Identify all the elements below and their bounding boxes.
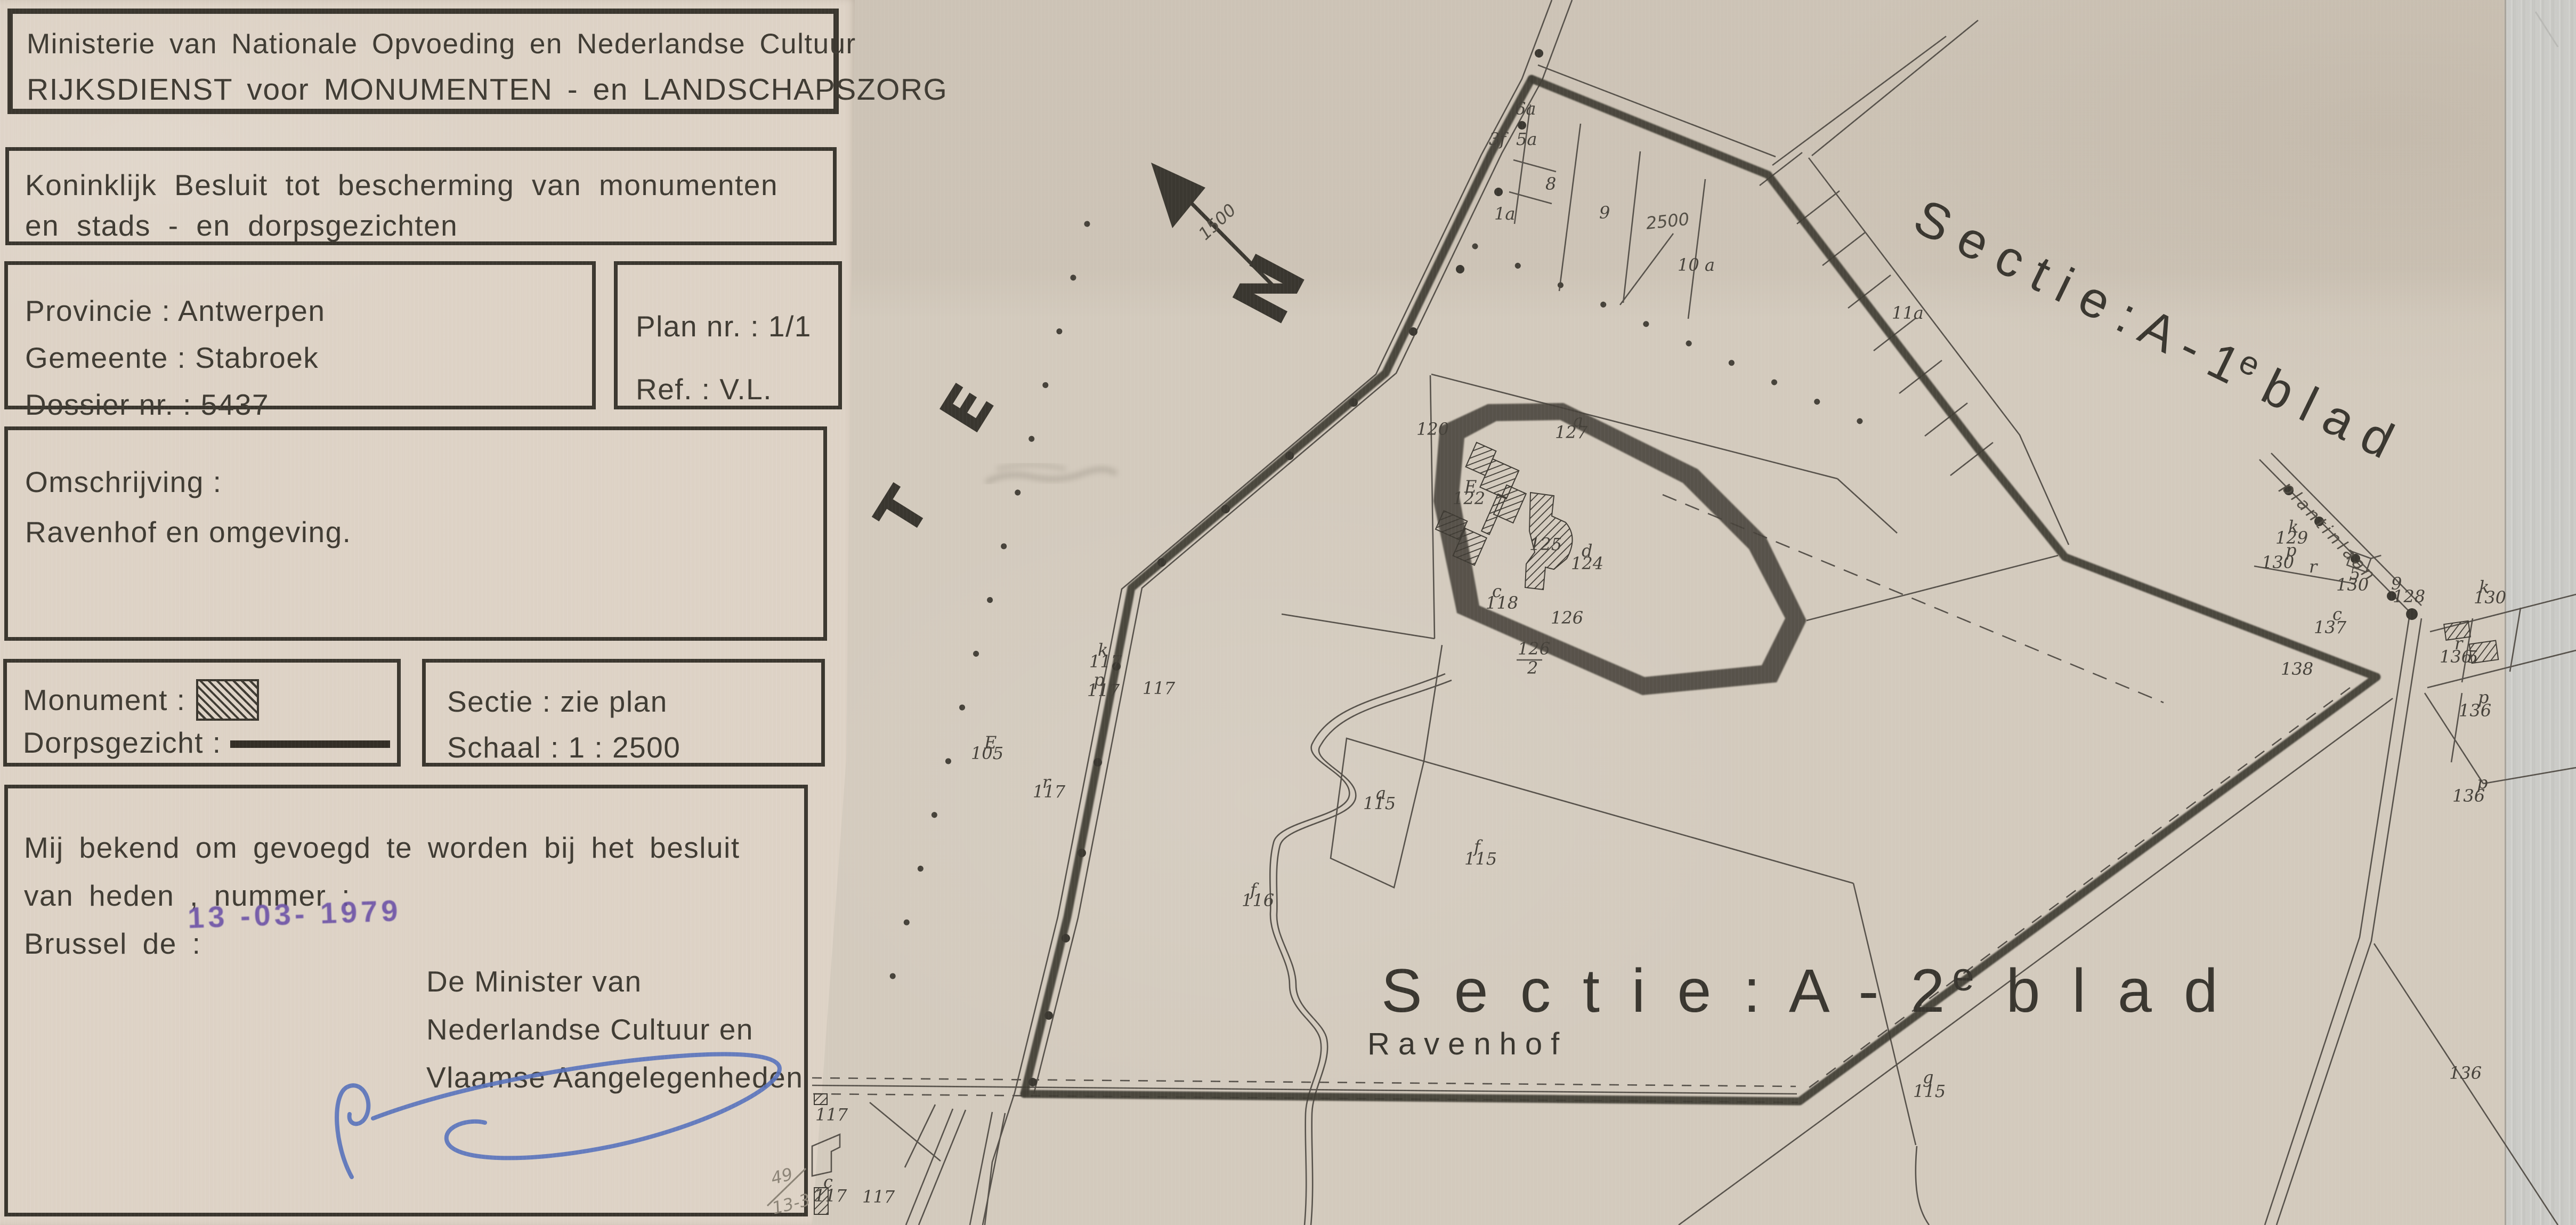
plan-nr-field: Plan nr. : 1/1 [636,295,838,358]
minister-line3: Vlaamse Aangelegenheden [426,1053,803,1101]
ref-field: Ref. : V.L. [636,358,838,421]
scanned-document-page: Ministerie van Nationale Opvoeding en Ne… [0,0,2576,1225]
minister-signature-block: De Minister van Nederlandse Cultuur en V… [426,957,803,1101]
dorpsgezicht-line-swatch [230,740,390,748]
monument-legend-label: Monument : [23,683,185,717]
omschrijving-value: Ravenhof en omgeving. [25,507,823,557]
decree-line1: Koninklijk Besluit tot bescherming van m… [25,165,833,205]
header-box: Ministerie van Nationale Opvoeding en Ne… [7,9,839,114]
plan-box: Plan nr. : 1/1 Ref. : V.L. [614,261,842,409]
provincie-field: Provincie : Antwerpen [25,287,592,334]
minister-line1: De Minister van [426,957,803,1005]
legend-box: Monument : Dorpsgezicht : [3,659,401,767]
map-paper-sheet [789,0,2576,1225]
schaal-field: Schaal : 1 : 2500 [447,724,821,770]
dossier-field: Dossier nr. : 5437 [25,381,592,428]
gemeente-field: Gemeente : Stabroek [25,334,592,381]
location-box: Provincie : Antwerpen Gemeente : Stabroe… [4,261,596,409]
dorpsgezicht-legend-label: Dorpsgezicht : [23,726,222,760]
decree-box: Koninklijk Besluit tot bescherming van m… [5,147,837,245]
agency-title: RIJKSDIENST voor MONUMENTEN - en LANDSCH… [27,72,833,107]
ministry-title: Ministerie van Nationale Opvoeding en Ne… [27,28,833,60]
scanner-edge-strip [2505,0,2576,1225]
sectie-field: Sectie : zie plan [447,679,821,724]
statement-line1: Mij bekend om gevoegd te worden bij het … [24,824,804,872]
statement-line2: van heden , nummer : [24,872,804,920]
omschrijving-label: Omschrijving : [25,457,823,507]
scale-box: Sectie : zie plan Schaal : 1 : 2500 [422,659,825,767]
decree-line2: en stads - en dorpsgezichten [25,205,833,246]
minister-line2: Nederlandse Cultuur en [426,1005,803,1053]
description-box: Omschrijving : Ravenhof en omgeving. [4,426,827,641]
monument-hatch-swatch [196,679,259,721]
